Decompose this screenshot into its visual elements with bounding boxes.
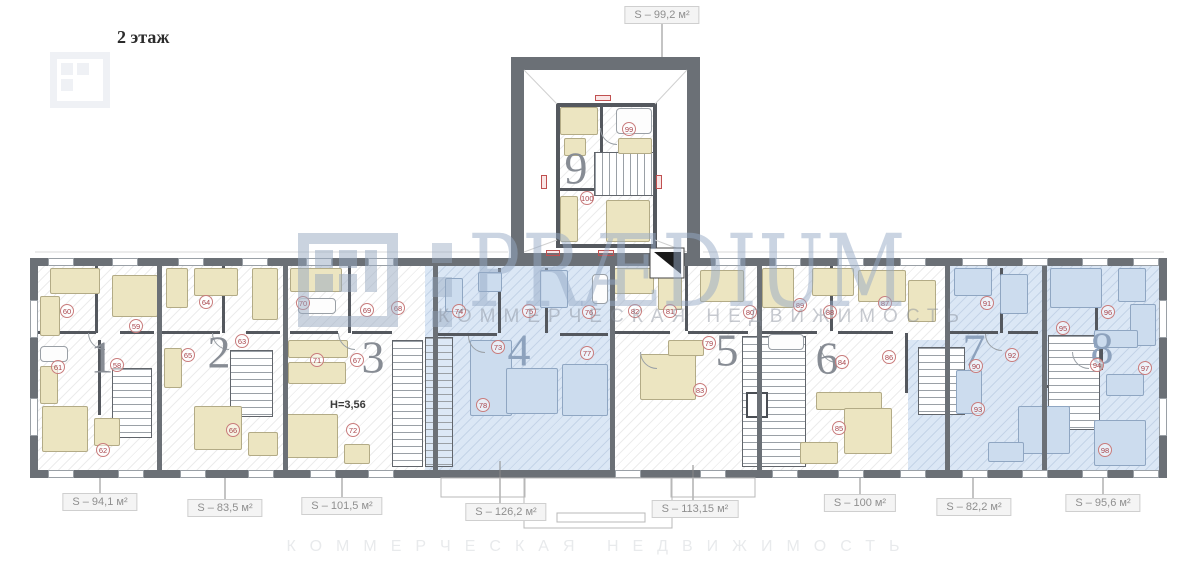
area-label: S – 126,2 м² bbox=[465, 503, 546, 521]
area-labels-layer: S – 94,1 м²S – 83,5 м²S – 101,5 м²S – 12… bbox=[0, 0, 1200, 568]
area-label: S – 94,1 м² bbox=[62, 493, 137, 511]
area-label: S – 95,6 м² bbox=[1065, 494, 1140, 512]
floor-plan-canvas: 2 этаж S – 99,2 м² Н=3,56 123456789 5859… bbox=[0, 0, 1200, 568]
area-label: S – 101,5 м² bbox=[301, 497, 382, 515]
area-label: S – 113,15 м² bbox=[652, 500, 739, 518]
area-label: S – 100 м² bbox=[824, 494, 896, 512]
area-label: S – 82,2 м² bbox=[936, 498, 1011, 516]
area-label: S – 83,5 м² bbox=[187, 499, 262, 517]
